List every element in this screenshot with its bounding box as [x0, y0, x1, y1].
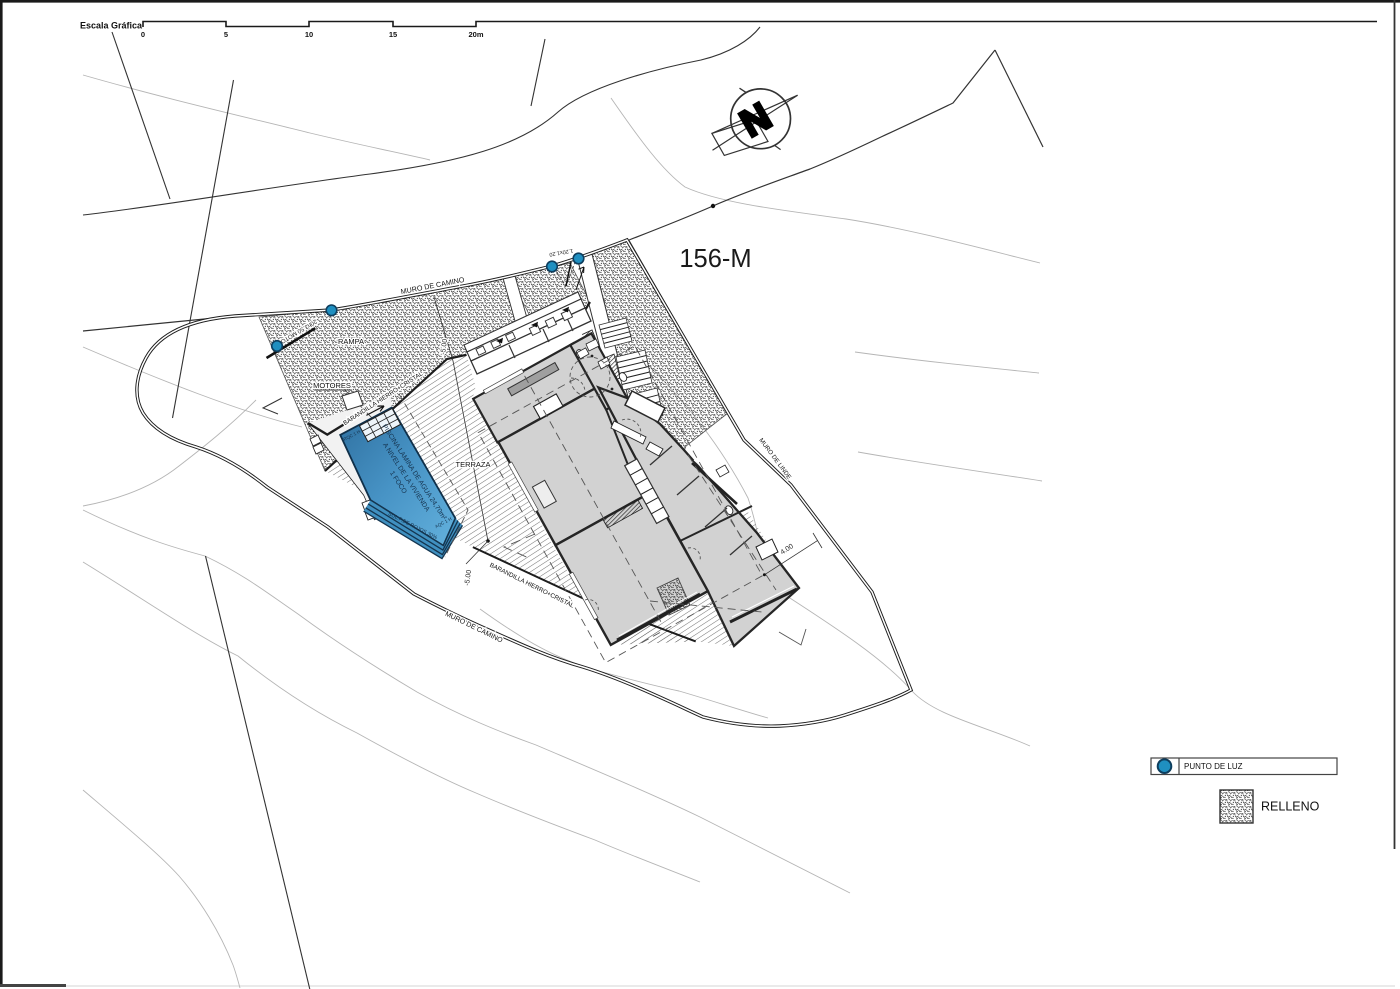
svg-text:Escala Gráfica: Escala Gráfica	[80, 21, 143, 31]
svg-text:10: 10	[305, 30, 313, 39]
svg-text:156-M: 156-M	[679, 245, 751, 273]
svg-text:20m: 20m	[468, 30, 483, 39]
svg-text:5: 5	[224, 30, 228, 39]
svg-text:RAMPA: RAMPA	[338, 337, 364, 346]
svg-text:0: 0	[141, 30, 145, 39]
svg-text:TERRAZA: TERRAZA	[455, 460, 490, 469]
svg-text:MOTORES: MOTORES	[313, 381, 351, 390]
svg-text:15: 15	[389, 30, 397, 39]
svg-text:RELLENO: RELLENO	[1261, 800, 1320, 814]
svg-text:PUNTO DE LUZ: PUNTO DE LUZ	[1184, 762, 1243, 771]
